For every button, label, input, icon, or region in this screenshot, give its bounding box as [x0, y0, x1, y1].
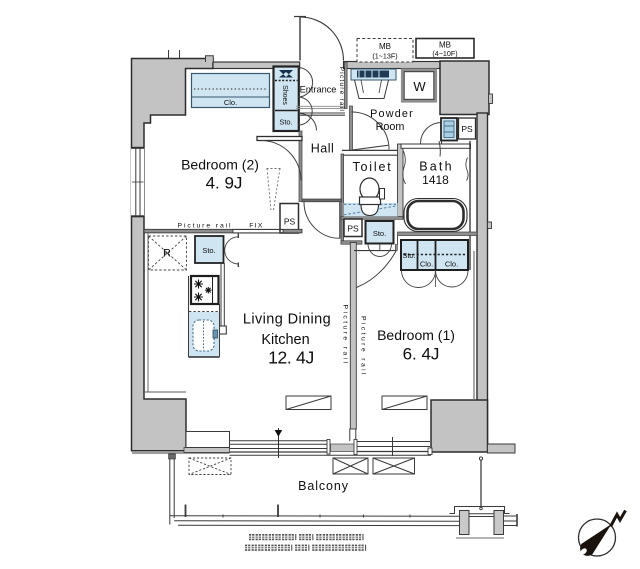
svg-text:Powder: Powder: [370, 108, 414, 120]
svg-text:PS: PS: [284, 217, 296, 227]
svg-text:Clo.: Clo.: [445, 260, 458, 269]
svg-text:12. 4J: 12. 4J: [268, 348, 314, 368]
svg-text:Clo.: Clo.: [420, 260, 433, 269]
svg-text:Entrance: Entrance: [300, 85, 337, 95]
svg-text:Picture rail: Picture rail: [178, 223, 233, 230]
svg-text:Bedroom (1): Bedroom (1): [377, 327, 455, 343]
svg-text:Shoes: Shoes: [281, 85, 288, 105]
svg-text:Picture rail: Picture rail: [360, 316, 367, 377]
svg-text:W: W: [413, 79, 426, 94]
svg-text:Toilet: Toilet: [353, 160, 393, 174]
svg-text:Sto.: Sto.: [373, 229, 386, 238]
svg-text:Clo.: Clo.: [224, 98, 237, 107]
svg-text:PS: PS: [461, 124, 473, 134]
svg-text:1418: 1418: [422, 173, 449, 187]
svg-text:Kitchen: Kitchen: [261, 332, 309, 348]
svg-text:Picture rail: Picture rail: [338, 67, 345, 112]
svg-text:R: R: [163, 248, 171, 260]
svg-text:Hall: Hall: [311, 142, 335, 156]
svg-text:Sto.: Sto.: [279, 118, 292, 127]
svg-text:Bedroom (2): Bedroom (2): [181, 157, 259, 173]
svg-text:Living Dining: Living Dining: [243, 312, 331, 328]
svg-text:PS: PS: [347, 224, 359, 234]
svg-text:FIX: FIX: [249, 223, 263, 230]
svg-text:(1~13F): (1~13F): [372, 52, 397, 61]
svg-text:MB: MB: [379, 42, 391, 51]
svg-text:6. 4J: 6. 4J: [403, 345, 440, 364]
svg-text:Sto.: Sto.: [202, 246, 215, 255]
svg-text:Balcony: Balcony: [298, 479, 349, 493]
svg-text:Picture rail: Picture rail: [342, 305, 349, 366]
svg-text:(4~10F): (4~10F): [432, 49, 457, 58]
svg-text:Sto.: Sto.: [402, 251, 415, 260]
svg-text:Bath: Bath: [419, 160, 454, 174]
svg-text:Room: Room: [376, 121, 405, 133]
svg-text:4. 9J: 4. 9J: [206, 174, 243, 193]
